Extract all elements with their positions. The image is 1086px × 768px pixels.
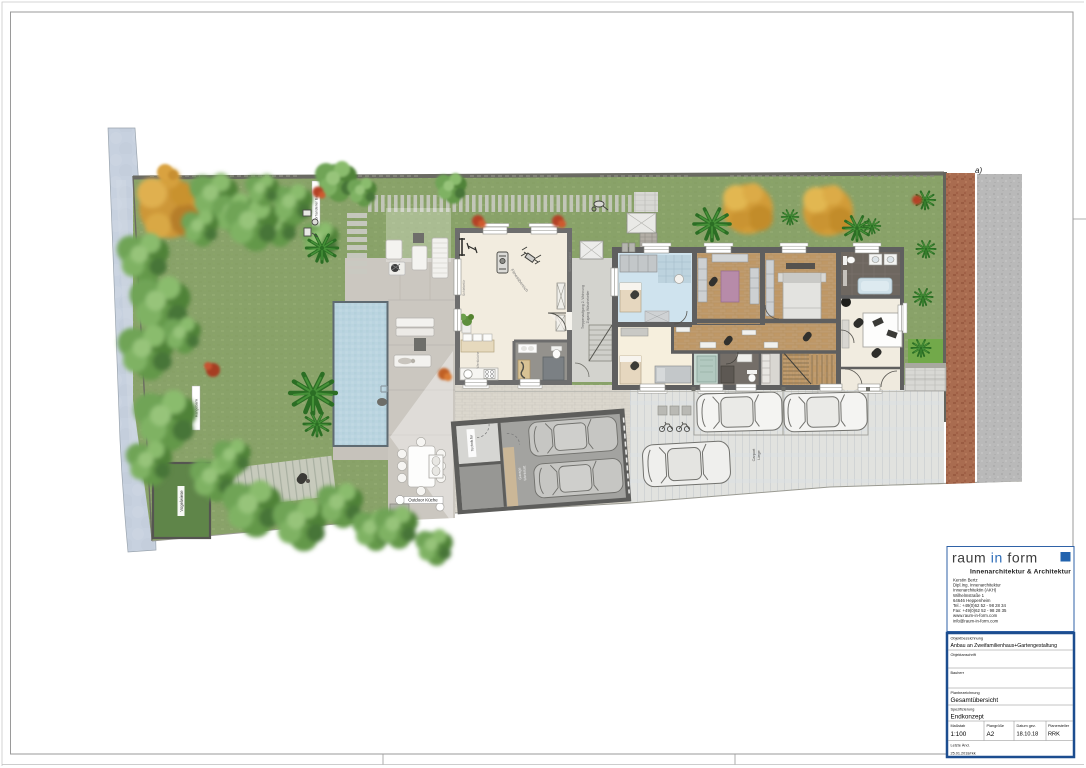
svg-text:Plangröße: Plangröße [987,724,1005,728]
svg-text:Liege: Liege [757,450,761,459]
svg-text:Endkonzept: Endkonzept [951,714,985,721]
svg-text:Outdoor Küche: Outdoor Küche [408,498,438,503]
svg-text:Anbau an Zweifamilienhaus+Gart: Anbau an Zweifamilienhaus+Gartengestaltu… [951,643,1058,649]
svg-text:18.10.18: 18.10.18 [1017,732,1039,738]
svg-text:Maßstab: Maßstab [951,724,966,728]
svg-text:a): a) [975,166,982,175]
svg-text:Spezifizierung: Spezifizierung [951,708,975,712]
svg-text:Planbezeichnung: Planbezeichnung [951,691,980,695]
svg-text:Carport: Carport [752,448,756,462]
svg-text:A2: A2 [987,731,995,738]
svg-text:Schiebetür: Schiebetür [462,279,466,296]
svg-text:Objektbezeichnung: Objektbezeichnung [951,637,984,641]
svg-text:Objektanschrift: Objektanschrift [951,653,977,657]
svg-text:Planersteller: Planersteller [1048,724,1070,728]
svg-text:Datum gez.: Datum gez. [1017,724,1036,728]
svg-text:Letzte Änd.: Letzte Änd. [951,744,970,748]
svg-text:RRK: RRK [1048,732,1060,738]
svg-text:Zugang Wäschekeller: Zugang Wäschekeller [586,290,590,324]
svg-text:Werkküche: Werkküche [476,351,480,368]
svg-text:25.01.2018/rkk: 25.01.2018/rkk [951,752,976,756]
svg-text:Treppenaufgang 2. Wohnung: Treppenaufgang 2. Wohnung [581,285,585,329]
svg-text:1:100: 1:100 [951,731,967,738]
svg-text:raum in form: raum in form [952,550,1038,566]
svg-text:Sonnenwand: Sonnenwand [568,252,572,272]
svg-text:Innenarchitektur & Architektur: Innenarchitektur & Architektur [970,569,1071,576]
svg-text:Bauherr: Bauherr [951,671,965,675]
svg-text:Vogelwiese: Vogelwiese [179,490,184,512]
svg-text:info@raum-in-form.com: info@raum-in-form.com [953,618,999,623]
svg-text:Gesamtübersicht: Gesamtübersicht [951,697,999,704]
